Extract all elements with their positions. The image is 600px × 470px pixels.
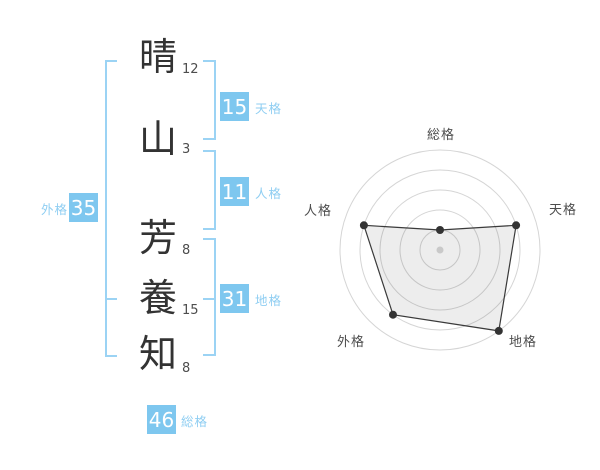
bracket-tick: [107, 60, 117, 62]
bracket-tick: [203, 238, 214, 240]
radar-axis-label-chikaku: 地格: [509, 331, 537, 350]
name-character-2: 山: [138, 119, 178, 159]
chikaku-bracket: [202, 238, 216, 356]
jinkaku-value-badge: 11: [220, 177, 249, 206]
radar-axis-label-gaikaku: 外格: [337, 331, 365, 350]
name-character-4: 養: [138, 278, 178, 318]
tenkaku-label: 天格: [255, 93, 282, 122]
radar-center-dot: [437, 247, 444, 254]
bracket-tick: [203, 298, 214, 300]
radar-axis-label-soukaku: 総格: [427, 124, 455, 143]
radar-data-point: [512, 221, 520, 229]
radar-axis-label-jinkaku: 人格: [304, 200, 332, 219]
bracket-tick: [203, 228, 214, 230]
tenkaku-bracket: [202, 60, 216, 140]
jinkaku-label: 人格: [255, 178, 282, 207]
bracket-tick: [203, 354, 214, 356]
radar-data-point: [436, 226, 444, 234]
bracket-tick: [203, 60, 214, 62]
bracket-tick: [203, 138, 214, 140]
radar-data-point: [389, 311, 397, 319]
bracket-tick: [107, 355, 117, 357]
bracket-tick: [203, 150, 214, 152]
tenkaku-value-badge: 15: [220, 92, 249, 121]
radar-data-polygon: [364, 225, 516, 331]
name-character-1: 晴: [138, 37, 178, 77]
name-fortune-panel: 晴 山 芳 養 知 12 3 8 15 8 15 天格 11 人格 31 地格 …: [0, 0, 600, 470]
radar-data-point: [495, 327, 503, 335]
chikaku-value-badge: 31: [220, 284, 249, 313]
radar-data-point: [360, 221, 368, 229]
gaikaku-label: 外格: [40, 194, 68, 223]
gaikaku-bracket: [105, 60, 119, 357]
name-character-3: 芳: [138, 218, 178, 258]
name-character-5: 知: [138, 334, 178, 374]
jinkaku-bracket: [202, 150, 216, 230]
chikaku-label: 地格: [255, 285, 282, 314]
stroke-count-5: 8: [182, 361, 206, 376]
soukaku-label: 総格: [181, 406, 208, 435]
soukaku-value-badge: 46: [147, 405, 176, 434]
gaikaku-value-badge: 35: [69, 193, 98, 222]
radar-axis-label-tenkaku: 天格: [549, 199, 577, 218]
bracket-tick: [107, 298, 117, 300]
